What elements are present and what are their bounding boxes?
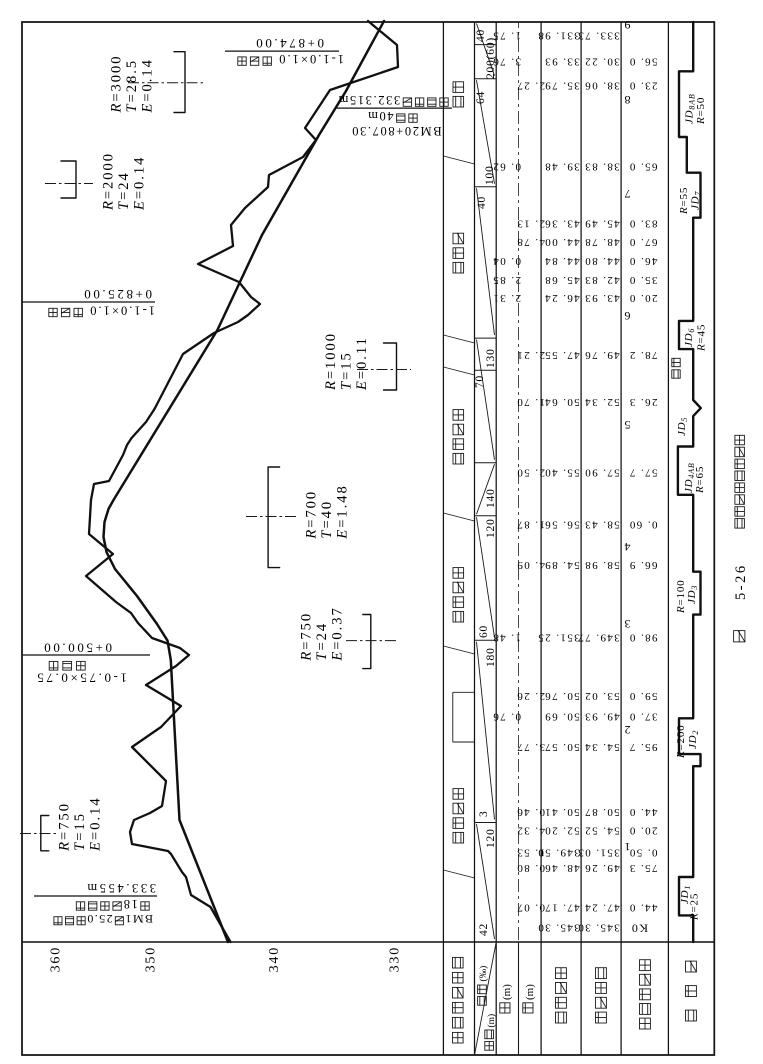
svg-text:25.0: 25.0 [86,912,113,926]
svg-text:44. 80: 44. 80 [584,255,620,267]
svg-text:R=45: R=45 [696,324,708,352]
svg-text:120: 120 [485,518,497,538]
svg-text:58. 43: 58. 43 [584,519,620,531]
svg-text:59. 0: 59. 0 [629,690,658,702]
svg-text:35. 79: 35. 79 [544,80,580,92]
svg-text:18: 18 [122,897,138,911]
svg-text:50. 64: 50. 64 [544,396,580,408]
svg-text:23. 0: 23. 0 [629,80,658,92]
svg-text:54. 52: 54. 52 [584,825,620,837]
svg-text:50. 41: 50. 41 [544,806,580,818]
svg-text:38. 83: 38. 83 [584,161,620,173]
svg-text:345. 30: 345. 30 [537,922,580,934]
svg-text:1-1.0×1.0: 1-1.0×1.0 [83,304,155,318]
svg-text:140: 140 [485,488,497,508]
svg-text:75. 3: 75. 3 [629,862,658,874]
svg-text:95. 7: 95. 7 [629,741,658,753]
svg-text:E=0.14: E=0.14 [132,156,148,211]
svg-text:T=24: T=24 [116,171,132,210]
svg-text:40: 40 [475,29,487,42]
svg-text:R=200: R=200 [675,725,687,759]
svg-text:53. 02: 53. 02 [584,690,620,702]
svg-text:52. 20: 52. 20 [544,825,580,837]
svg-text:2. 26: 2. 26 [516,690,545,702]
svg-text:R=750: R=750 [57,802,73,852]
svg-text:349. 50: 349. 50 [537,847,580,859]
svg-text:0. 62: 0. 62 [492,161,521,173]
svg-text:57. 7: 57. 7 [629,467,658,479]
svg-text:49. 76: 49. 76 [584,349,620,361]
svg-text:1. 75: 1. 75 [492,30,521,42]
svg-text:54. 89: 54. 89 [544,559,580,571]
svg-text:47. 55: 47. 55 [544,349,580,361]
svg-text:1-0.75×0.75: 1-0.75×0.75 [35,671,127,686]
svg-text:0. 07: 0. 07 [516,902,545,914]
svg-text:50. 57: 50. 57 [544,741,580,753]
svg-text:E=0.11: E=0.11 [354,336,370,391]
svg-text:JD3: JD3 [686,585,699,604]
svg-text:(m): (m) [524,984,536,1000]
svg-text:130: 130 [485,348,497,368]
svg-text:2. 27: 2. 27 [516,80,545,92]
svg-text:1. 48: 1. 48 [492,632,521,644]
svg-text:45. 49: 45. 49 [584,218,620,230]
svg-text:35. 0: 35. 0 [629,274,658,286]
svg-text:2. 31: 2. 31 [492,292,521,304]
svg-text:330: 330 [388,946,403,972]
svg-text:58. 98: 58. 98 [584,559,620,571]
svg-text:0. 04: 0. 04 [492,255,521,267]
svg-text:T=40: T=40 [319,500,335,539]
svg-text:26. 3: 26. 3 [629,396,658,408]
svg-text:3. 76: 3. 76 [492,56,521,68]
svg-text:(m): (m) [486,1014,497,1028]
svg-text:R=750: R=750 [299,612,315,662]
svg-text:E=0.14: E=0.14 [140,58,156,113]
svg-text:JD5: JD5 [676,417,689,436]
svg-text:0. 60: 0. 60 [629,519,658,531]
svg-text:R=55: R=55 [678,187,690,215]
svg-text:38. 06: 38. 06 [584,80,620,92]
svg-text:340: 340 [267,946,282,972]
svg-text:JD7: JD7 [690,191,703,210]
svg-text:42: 42 [478,923,490,936]
svg-text:332.315m: 332.315m [337,93,400,107]
svg-text:1-1.0×1.0: 1-1.0×1.0 [272,52,344,66]
svg-text:4. 78: 4. 78 [516,236,545,248]
svg-text:56. 0: 56. 0 [629,56,658,68]
svg-text:2. 13: 2. 13 [516,218,545,230]
svg-text:43. 36: 43. 36 [544,218,580,230]
svg-text:2. 50: 2. 50 [516,467,545,479]
svg-text:5: 5 [625,418,631,432]
svg-text:5-26: 5-26 [733,563,749,600]
svg-text:R=50: R=50 [695,97,707,125]
svg-text:(m): (m) [501,984,513,1000]
svg-text:48. 46: 48. 46 [544,862,580,874]
svg-text:48. 78: 48. 78 [584,236,620,248]
svg-text:JD6: JD6 [683,328,696,347]
svg-text:65. 0: 65. 0 [629,161,658,173]
svg-text:57. 90: 57. 90 [584,467,620,479]
svg-text:4. 09: 4. 09 [516,559,545,571]
svg-text:20. 0: 20. 0 [629,292,658,304]
svg-text:3. 77: 3. 77 [516,741,545,753]
svg-text:180: 180 [485,647,497,667]
svg-text:43. 93: 43. 93 [584,292,620,304]
svg-text:4. 32: 4. 32 [516,825,545,837]
svg-text:0. 80: 0. 80 [516,862,545,874]
svg-text:70: 70 [474,375,486,388]
svg-text:0+874.00: 0+874.00 [254,36,324,51]
svg-text:1: 1 [625,840,631,854]
svg-text:7: 7 [625,187,631,201]
svg-text:(‰): (‰) [478,966,489,982]
svg-text:345. 30: 345. 30 [577,922,620,934]
svg-text:R=1000: R=1000 [323,332,339,391]
svg-text:50. 76: 50. 76 [544,690,580,702]
svg-text:9: 9 [625,18,631,32]
svg-text:E=0.14: E=0.14 [88,796,104,851]
svg-text:349. 77: 349. 77 [577,632,620,644]
svg-text:3: 3 [478,810,490,817]
svg-text:78. 2: 78. 2 [629,349,658,361]
svg-text:52. 34: 52. 34 [584,396,620,408]
svg-text:120: 120 [485,828,497,848]
svg-text:40: 40 [476,196,488,209]
svg-text:R=3000: R=3000 [109,54,125,113]
svg-text:T=24: T=24 [314,622,330,661]
svg-text:46. 24: 46. 24 [544,292,580,304]
svg-text:2. 21: 2. 21 [516,349,545,361]
svg-text:351. 03: 351. 03 [577,847,620,859]
svg-text:R=700: R=700 [304,490,320,540]
svg-text:66. 9: 66. 9 [629,559,658,571]
svg-text:0. 76: 0. 76 [492,711,521,723]
svg-text:44. 00: 44. 00 [544,236,580,248]
svg-text:54. 34: 54. 34 [584,741,620,753]
svg-text:44. 0: 44. 0 [629,806,658,818]
svg-text:49. 93: 49. 93 [584,711,620,723]
svg-text:R=25: R=25 [689,893,701,921]
svg-text:40m: 40m [367,109,394,123]
svg-text:BM1: BM1 [124,912,153,926]
svg-text:39. 48: 39. 48 [544,161,580,173]
svg-text:0. 46: 0. 46 [516,806,545,818]
svg-text:44. 0: 44. 0 [629,902,658,914]
svg-text:55. 40: 55. 40 [544,467,580,479]
svg-text:2: 2 [625,723,631,737]
svg-text:4: 4 [625,540,631,554]
svg-text:351. 25: 351. 25 [537,632,580,644]
svg-text:T=28.5: T=28.5 [124,59,140,113]
svg-text:331. 98: 331. 98 [537,30,580,42]
svg-text:30. 22: 30. 22 [584,56,620,68]
svg-text:JD2: JD2 [687,730,700,749]
svg-text:333. 73: 333. 73 [577,30,620,42]
svg-text:333.455m: 333.455m [85,881,156,895]
svg-text:K0: K0 [630,922,648,936]
svg-text:0+825.00: 0+825.00 [82,287,152,302]
svg-text:47. 17: 47. 17 [544,902,580,914]
svg-text:T=15: T=15 [72,812,88,851]
svg-text:T=15: T=15 [339,351,355,390]
svg-text:20. 0: 20. 0 [629,825,658,837]
svg-text:83. 0: 83. 0 [629,218,658,230]
svg-text:98. 0: 98. 0 [629,632,658,644]
svg-text:R=65: R=65 [694,466,706,494]
svg-text:1. 70: 1. 70 [516,396,545,408]
svg-text:49. 26: 49. 26 [584,862,620,874]
svg-text:50. 69: 50. 69 [544,711,580,723]
svg-text:33. 93: 33. 93 [544,56,580,68]
svg-text:37. 0: 37. 0 [629,711,658,723]
svg-text:42. 83: 42. 83 [584,274,620,286]
svg-text:0+500.00: 0+500.00 [42,641,112,656]
svg-text:3: 3 [625,617,631,631]
svg-text:1. 87: 1. 87 [516,519,545,531]
svg-text:6: 6 [625,309,631,323]
svg-text:64: 64 [475,91,487,104]
svg-text:67. 0: 67. 0 [629,236,658,248]
svg-text:60: 60 [478,625,490,638]
svg-text:360: 360 [49,946,64,972]
svg-text:8: 8 [625,93,631,107]
svg-text:50. 87: 50. 87 [584,806,620,818]
svg-text:45. 68: 45. 68 [544,274,580,286]
svg-text:2. 85: 2. 85 [492,274,521,286]
svg-text:E=1.48: E=1.48 [335,484,351,539]
svg-text:56. 56: 56. 56 [544,519,580,531]
svg-text:BM20+807.30: BM20+807.30 [351,124,442,138]
svg-text:350: 350 [144,946,159,972]
svg-text:0. 50: 0. 50 [629,847,658,859]
svg-text:R=2000: R=2000 [101,152,117,211]
svg-text:47. 24: 47. 24 [584,902,620,914]
svg-text:E=0.37: E=0.37 [330,606,346,661]
svg-text:44. 84: 44. 84 [544,255,580,267]
svg-text:46. 0: 46. 0 [629,255,658,267]
